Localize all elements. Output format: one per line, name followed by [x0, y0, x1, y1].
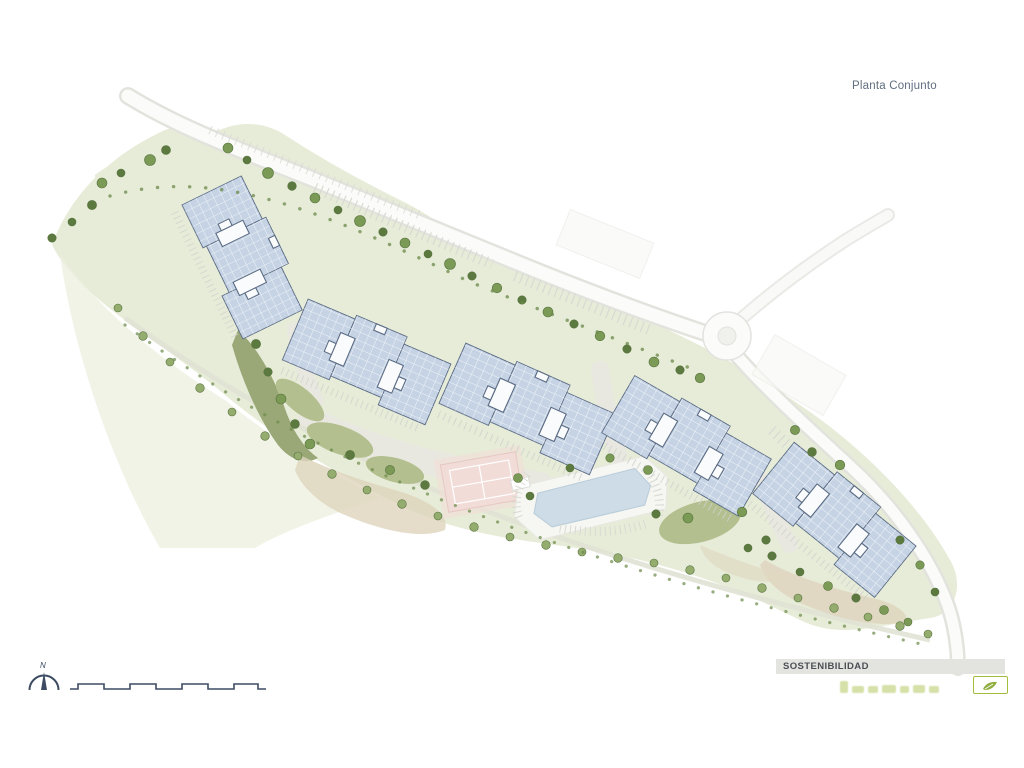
roundabout: [703, 312, 751, 360]
sustainability-header-label: SOSTENIBILIDAD: [776, 659, 1005, 674]
section-profile: [70, 684, 266, 689]
wordmark-glyph: [840, 681, 848, 693]
master-plan-drawing: N: [0, 0, 1024, 768]
north-arrow: N: [30, 661, 59, 690]
sustainability-wordmark: [840, 680, 952, 693]
page-title: Planta Conjunto: [852, 80, 937, 92]
wordmark-glyph: [882, 685, 896, 693]
site-plan-sheet: N Planta Conjunto SOSTENIBILIDAD: [0, 0, 1024, 768]
north-label: N: [40, 661, 46, 670]
wordmark-glyph: [852, 686, 864, 693]
wordmark-glyph: [900, 686, 909, 693]
wordmark-glyph: [913, 685, 925, 693]
eco-icon-box: [973, 676, 1008, 694]
wordmark-glyph: [868, 686, 878, 693]
wordmark-glyph: [929, 686, 939, 693]
leaf-icon: [979, 679, 1003, 691]
sustainability-header-bar: SOSTENIBILIDAD: [776, 659, 1005, 674]
